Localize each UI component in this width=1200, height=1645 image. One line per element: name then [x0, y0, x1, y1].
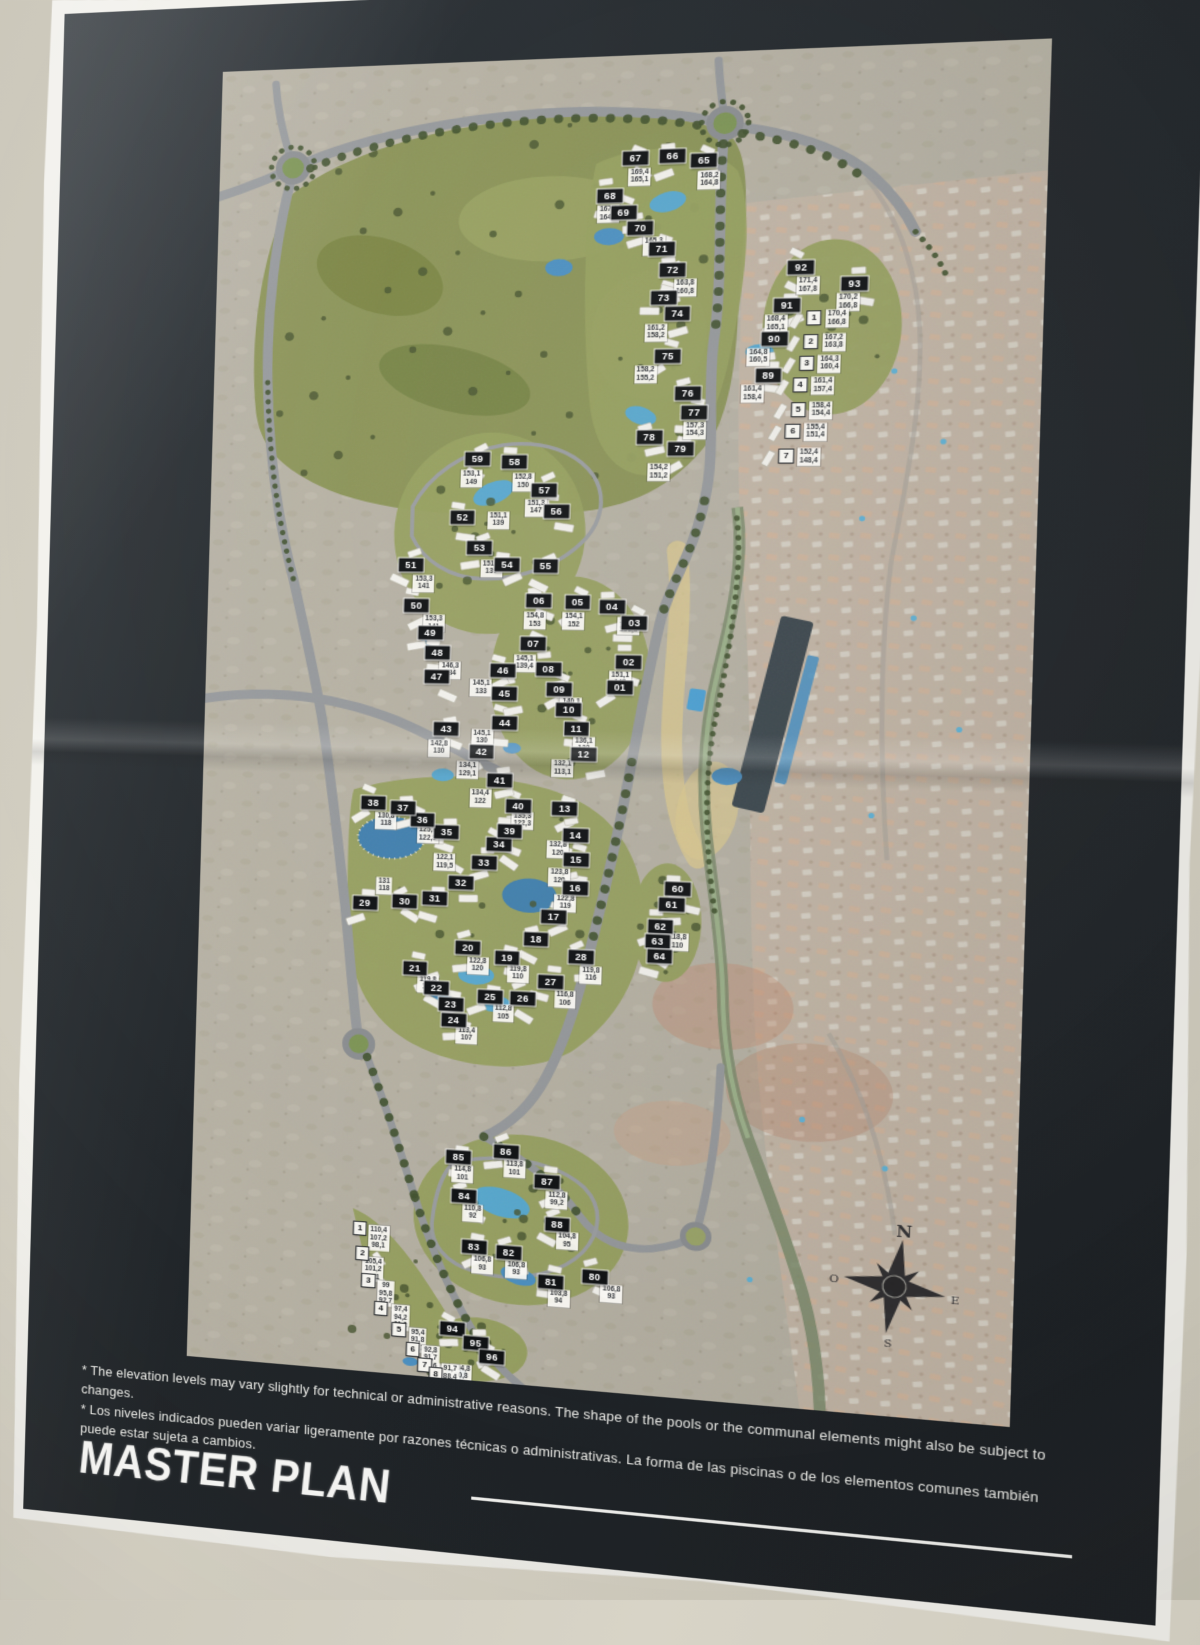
- plot-label: 43: [434, 721, 459, 735]
- plot-label: 28: [568, 950, 594, 965]
- elevation-label: 145,1139,4: [513, 654, 535, 672]
- elevation-label: 119,8110: [507, 964, 529, 983]
- elevation-label: 154,1152: [562, 612, 585, 630]
- elevation-label: 151,1139: [487, 512, 509, 530]
- unit-label: 3: [800, 357, 814, 370]
- plot-label: 08: [536, 662, 561, 676]
- unit-label: 1: [354, 1222, 366, 1235]
- plot-label: 61: [659, 897, 685, 912]
- plot-label: 55: [533, 560, 558, 574]
- plot-label: 74: [664, 307, 690, 321]
- plot-label: 10: [556, 703, 581, 717]
- elevation-label: 130,8118: [375, 811, 397, 829]
- elevation-label: 134,1129,1: [456, 761, 478, 779]
- unit-label: 4: [375, 1302, 388, 1315]
- plot-label: 49: [418, 626, 443, 640]
- plot-label: 04: [599, 600, 625, 614]
- elevation-label: 157,3154,3: [683, 421, 706, 439]
- elevation-label: 122,1119,5: [434, 853, 456, 872]
- plot-label: 18: [523, 932, 548, 947]
- plot-label: 13: [552, 801, 577, 815]
- elevation-label: 171,4167,8: [796, 276, 820, 295]
- plot-label: 27: [538, 974, 563, 989]
- plot-label: 70: [627, 221, 653, 235]
- plot-label: 95: [463, 1335, 488, 1351]
- plot-label: 21: [403, 961, 428, 976]
- map-area: N E S O 01020304050607080910111213141516…: [187, 38, 1052, 1427]
- unit-label: 7: [779, 450, 793, 463]
- compass-east-label: E: [951, 1295, 960, 1308]
- plot-label: 41: [487, 774, 512, 788]
- elevation-label: 113,8101: [504, 1160, 526, 1179]
- unit-label: 6: [786, 425, 800, 438]
- unit-label: 2: [356, 1247, 368, 1260]
- plot-label: 75: [655, 349, 681, 363]
- elevation-label: 119,8116: [580, 966, 602, 985]
- plot-label: 33: [471, 856, 496, 870]
- elevation-label: 164,3160,4: [818, 355, 842, 374]
- elevation-label: 152,8150: [512, 473, 534, 491]
- unit-label: 5: [791, 403, 805, 416]
- elevation-label: 161,4157,4: [811, 377, 835, 396]
- plot-label: 30: [392, 894, 417, 908]
- plot-label: 63: [645, 934, 671, 949]
- plot-label: 57: [532, 483, 557, 497]
- elevation-label: 154,2151,2: [647, 464, 670, 482]
- unit-label: 3: [362, 1274, 374, 1287]
- elevation-label: 132,1113,1: [551, 759, 574, 778]
- plot-label: 37: [391, 800, 416, 814]
- elevation-label: 112,899,2: [546, 1190, 568, 1209]
- plot-label: 88: [545, 1217, 570, 1232]
- plot-label: 81: [538, 1274, 563, 1290]
- plot-label: 39: [497, 824, 522, 838]
- plot-label: 02: [616, 655, 642, 669]
- elevation-label: 110,892: [462, 1204, 484, 1223]
- elevation-label: 134,4122: [469, 789, 491, 808]
- plot-label: 40: [506, 799, 531, 813]
- elevation-label: 161,2158,2: [644, 323, 667, 342]
- plot-label: 64: [647, 949, 673, 964]
- plot-label: 51: [399, 559, 424, 573]
- elevation-label: 131118: [376, 877, 392, 895]
- elevation-label: 106,893: [471, 1255, 493, 1274]
- unit-label: 2: [804, 335, 818, 348]
- elevation-label: 113,4107: [456, 1026, 478, 1045]
- compass-north-label: N: [896, 1222, 913, 1243]
- plot-label: 23: [438, 997, 463, 1012]
- plot-label: 20: [455, 941, 480, 956]
- plot-label: 12: [571, 747, 597, 761]
- plot-label: 05: [565, 595, 591, 609]
- elevation-label: 103,894: [547, 1289, 569, 1309]
- elevation-label: 158,4154,4: [809, 401, 833, 420]
- plot-label: 16: [562, 880, 588, 895]
- plot-label: 77: [681, 405, 707, 419]
- plot-label: 85: [446, 1150, 471, 1165]
- elevation-label: 112,8105: [492, 1004, 514, 1023]
- plot-label: 42: [469, 745, 494, 759]
- plot-label: 45: [492, 687, 517, 701]
- elevation-label: 142,8130: [428, 739, 450, 757]
- plot-label: 66: [660, 149, 686, 164]
- plot-label: 32: [448, 875, 473, 890]
- elevation-label: 155,4151,4: [804, 423, 828, 442]
- plot-label: 14: [563, 828, 589, 843]
- plot-label: 90: [761, 331, 788, 345]
- plot-label: 82: [496, 1245, 521, 1260]
- elevation-label: 106,893: [600, 1284, 623, 1304]
- plot-label: 15: [563, 853, 589, 868]
- plot-label: 19: [494, 950, 519, 965]
- plot-label: 26: [510, 991, 535, 1006]
- plot-label: 29: [353, 896, 378, 910]
- elevation-label: 154,8153: [524, 612, 546, 630]
- unit-label: 5: [393, 1323, 406, 1336]
- plot-label: 73: [651, 291, 677, 305]
- plot-label: 69: [611, 205, 637, 219]
- plot-label: 25: [478, 990, 503, 1005]
- plot-label: 38: [361, 795, 386, 809]
- plot-label: 46: [490, 663, 515, 677]
- plot-label: 09: [546, 682, 571, 696]
- plot-label: 92: [788, 260, 815, 275]
- plot-label: 24: [441, 1013, 466, 1028]
- plot-label: 35: [434, 825, 459, 839]
- plot-label: 68: [597, 189, 623, 203]
- plot-label: 67: [623, 151, 649, 166]
- poster-black-background: N E S O 01020304050607080910111213141516…: [23, 0, 1200, 1626]
- elevation-label: 114,8101: [452, 1165, 474, 1184]
- elevation-label: 91,788,485,4: [441, 1363, 459, 1390]
- plot-label: 52: [450, 510, 475, 524]
- plot-label: 80: [582, 1269, 608, 1285]
- plot-label: 56: [544, 504, 569, 518]
- elevation-label: 104,895: [556, 1232, 579, 1252]
- unit-label: 1: [807, 312, 821, 325]
- plot-label: 84: [452, 1188, 477, 1203]
- plot-label: 76: [675, 387, 701, 401]
- plot-label: 91: [774, 298, 801, 312]
- plot-label: 34: [486, 837, 511, 851]
- elevation-label: 164,8160,5: [747, 348, 770, 367]
- plot-label: 36: [410, 813, 435, 827]
- plot-label: 87: [534, 1175, 559, 1190]
- plot-label: 86: [493, 1144, 518, 1159]
- photo-grain: [187, 38, 1052, 1427]
- plot-label: 17: [541, 909, 566, 924]
- elevation-label: 116,8106: [554, 990, 576, 1009]
- elevation-label: 106,893: [505, 1260, 527, 1280]
- plot-label: 72: [660, 262, 686, 276]
- elevation-label: 167,2163,8: [822, 333, 846, 352]
- elevation-label: 152,4148,4: [797, 448, 821, 466]
- elevation-label: 145,1133: [470, 679, 492, 697]
- plot-label: 01: [607, 680, 633, 694]
- plot-label: 48: [425, 645, 450, 659]
- elevation-label: 110,4107,298,1: [367, 1225, 389, 1252]
- printed-master-plan-sheet: N E S O 01020304050607080910111213141516…: [7, 0, 1200, 1645]
- plot-label: 96: [480, 1349, 505, 1365]
- plot-label: 11: [564, 721, 589, 735]
- elevation-label: 122,8120: [466, 956, 488, 975]
- plot-label: 94: [440, 1321, 465, 1337]
- plot-label: 03: [622, 616, 648, 630]
- plot-label: 71: [649, 242, 675, 256]
- elevation-label: 161,4158,4: [741, 385, 764, 404]
- elevation-label: 158,2155,2: [634, 365, 657, 383]
- elevation-label: 169,4165,1: [628, 167, 651, 186]
- plot-label: 93: [841, 276, 868, 291]
- plot-label: 59: [465, 452, 490, 466]
- plot-label: 31: [422, 891, 447, 906]
- elevation-label: 153,1149: [460, 470, 482, 488]
- unit-label: 4: [793, 379, 807, 392]
- plot-label: 53: [467, 541, 492, 555]
- satellite-terrain: [187, 38, 1052, 1427]
- unit-label: 6: [407, 1342, 420, 1355]
- compass-south-label: S: [884, 1338, 893, 1351]
- plot-label: 22: [424, 981, 449, 996]
- plot-label: 89: [755, 368, 781, 382]
- plot-label: 60: [665, 881, 691, 896]
- plot-label: 79: [667, 442, 693, 456]
- elevation-label: 153,3141: [413, 575, 435, 593]
- elevation-label: 163,8160,8: [674, 278, 697, 297]
- plot-label: 65: [691, 153, 717, 168]
- plot-label: 06: [526, 594, 551, 608]
- plot-label: 50: [404, 599, 429, 613]
- plot-label: 44: [492, 715, 517, 729]
- plot-label: 78: [636, 430, 662, 444]
- elevation-label: 168,2164,8: [698, 171, 721, 190]
- plot-label: 54: [495, 558, 520, 572]
- plot-label: 47: [424, 670, 449, 684]
- compass-west-label: O: [830, 1273, 840, 1286]
- plot-label: 62: [647, 919, 673, 934]
- plot-label: 58: [502, 455, 527, 469]
- plot-label: 83: [461, 1240, 486, 1255]
- plot-label: 07: [520, 637, 545, 651]
- elevation-label: 170,4166,8: [825, 310, 849, 329]
- compass-rose: N E S O: [821, 1215, 970, 1360]
- unit-label: 8: [429, 1368, 442, 1382]
